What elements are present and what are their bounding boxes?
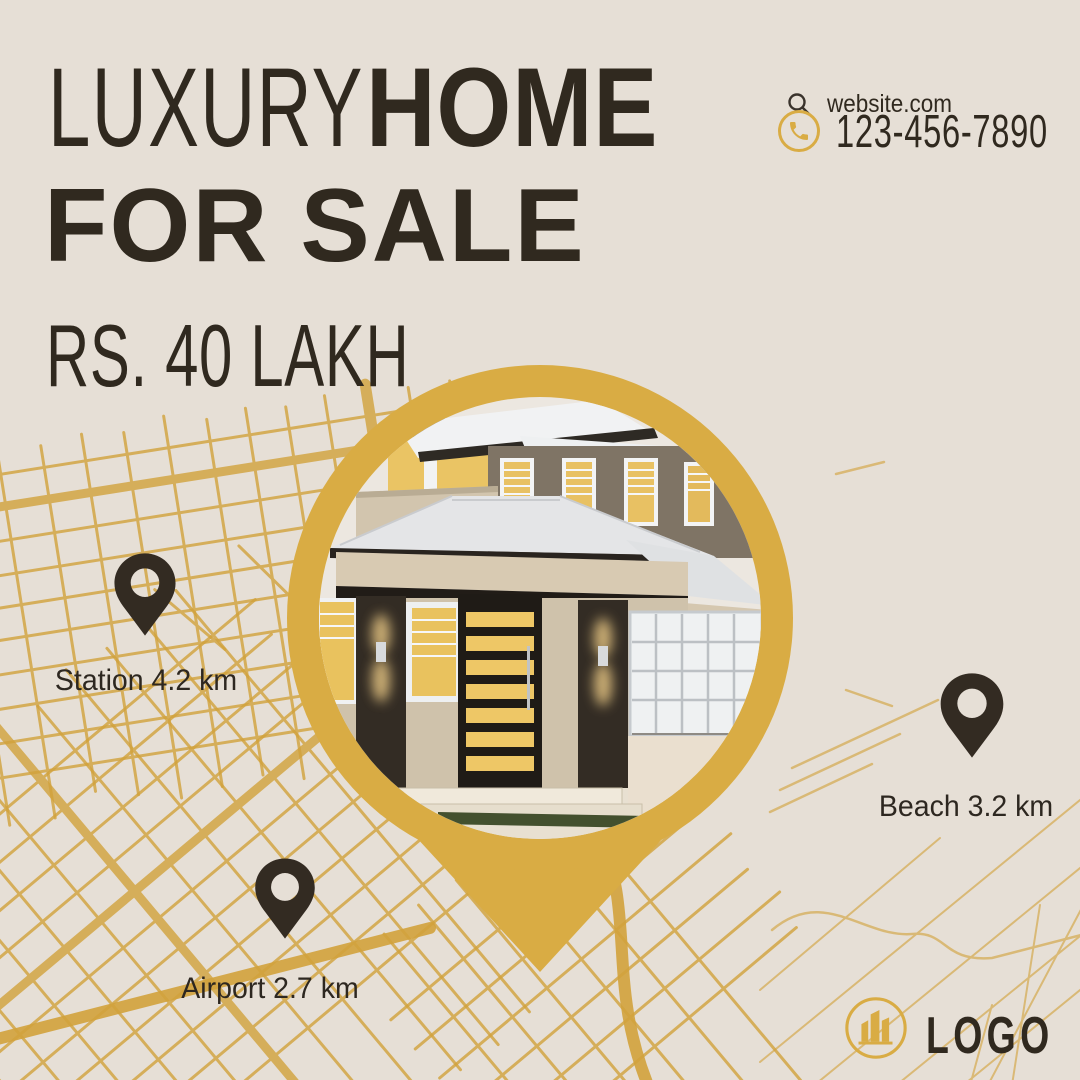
- buildings-logo-icon[interactable]: [842, 994, 910, 1062]
- airport-pin-icon: [247, 850, 323, 948]
- logo-text: LOGO: [926, 1006, 1054, 1066]
- luxury-home-sale-poster: LUXURY HOME FOR SALE RS. 40 LAKH website…: [0, 0, 1080, 1080]
- title-for-sale: FOR SALE: [44, 174, 586, 278]
- phone-number: 123-456-7890: [836, 104, 1048, 158]
- beach-pin-icon: [932, 664, 1012, 768]
- phone-row[interactable]: 123-456-7890: [776, 104, 1080, 158]
- title-home: HOME: [366, 52, 658, 164]
- title-luxury: LUXURY: [48, 52, 364, 164]
- station-distance-label: Station 4.2 km: [23, 664, 270, 698]
- airport-distance-label: Airport 2.7 km: [147, 972, 394, 1006]
- station-pin-icon: [106, 545, 184, 645]
- phone-icon: [776, 108, 822, 154]
- beach-distance-label: Beach 3.2 km: [843, 790, 1080, 824]
- price-text: RS. 40 LAKH: [46, 312, 409, 400]
